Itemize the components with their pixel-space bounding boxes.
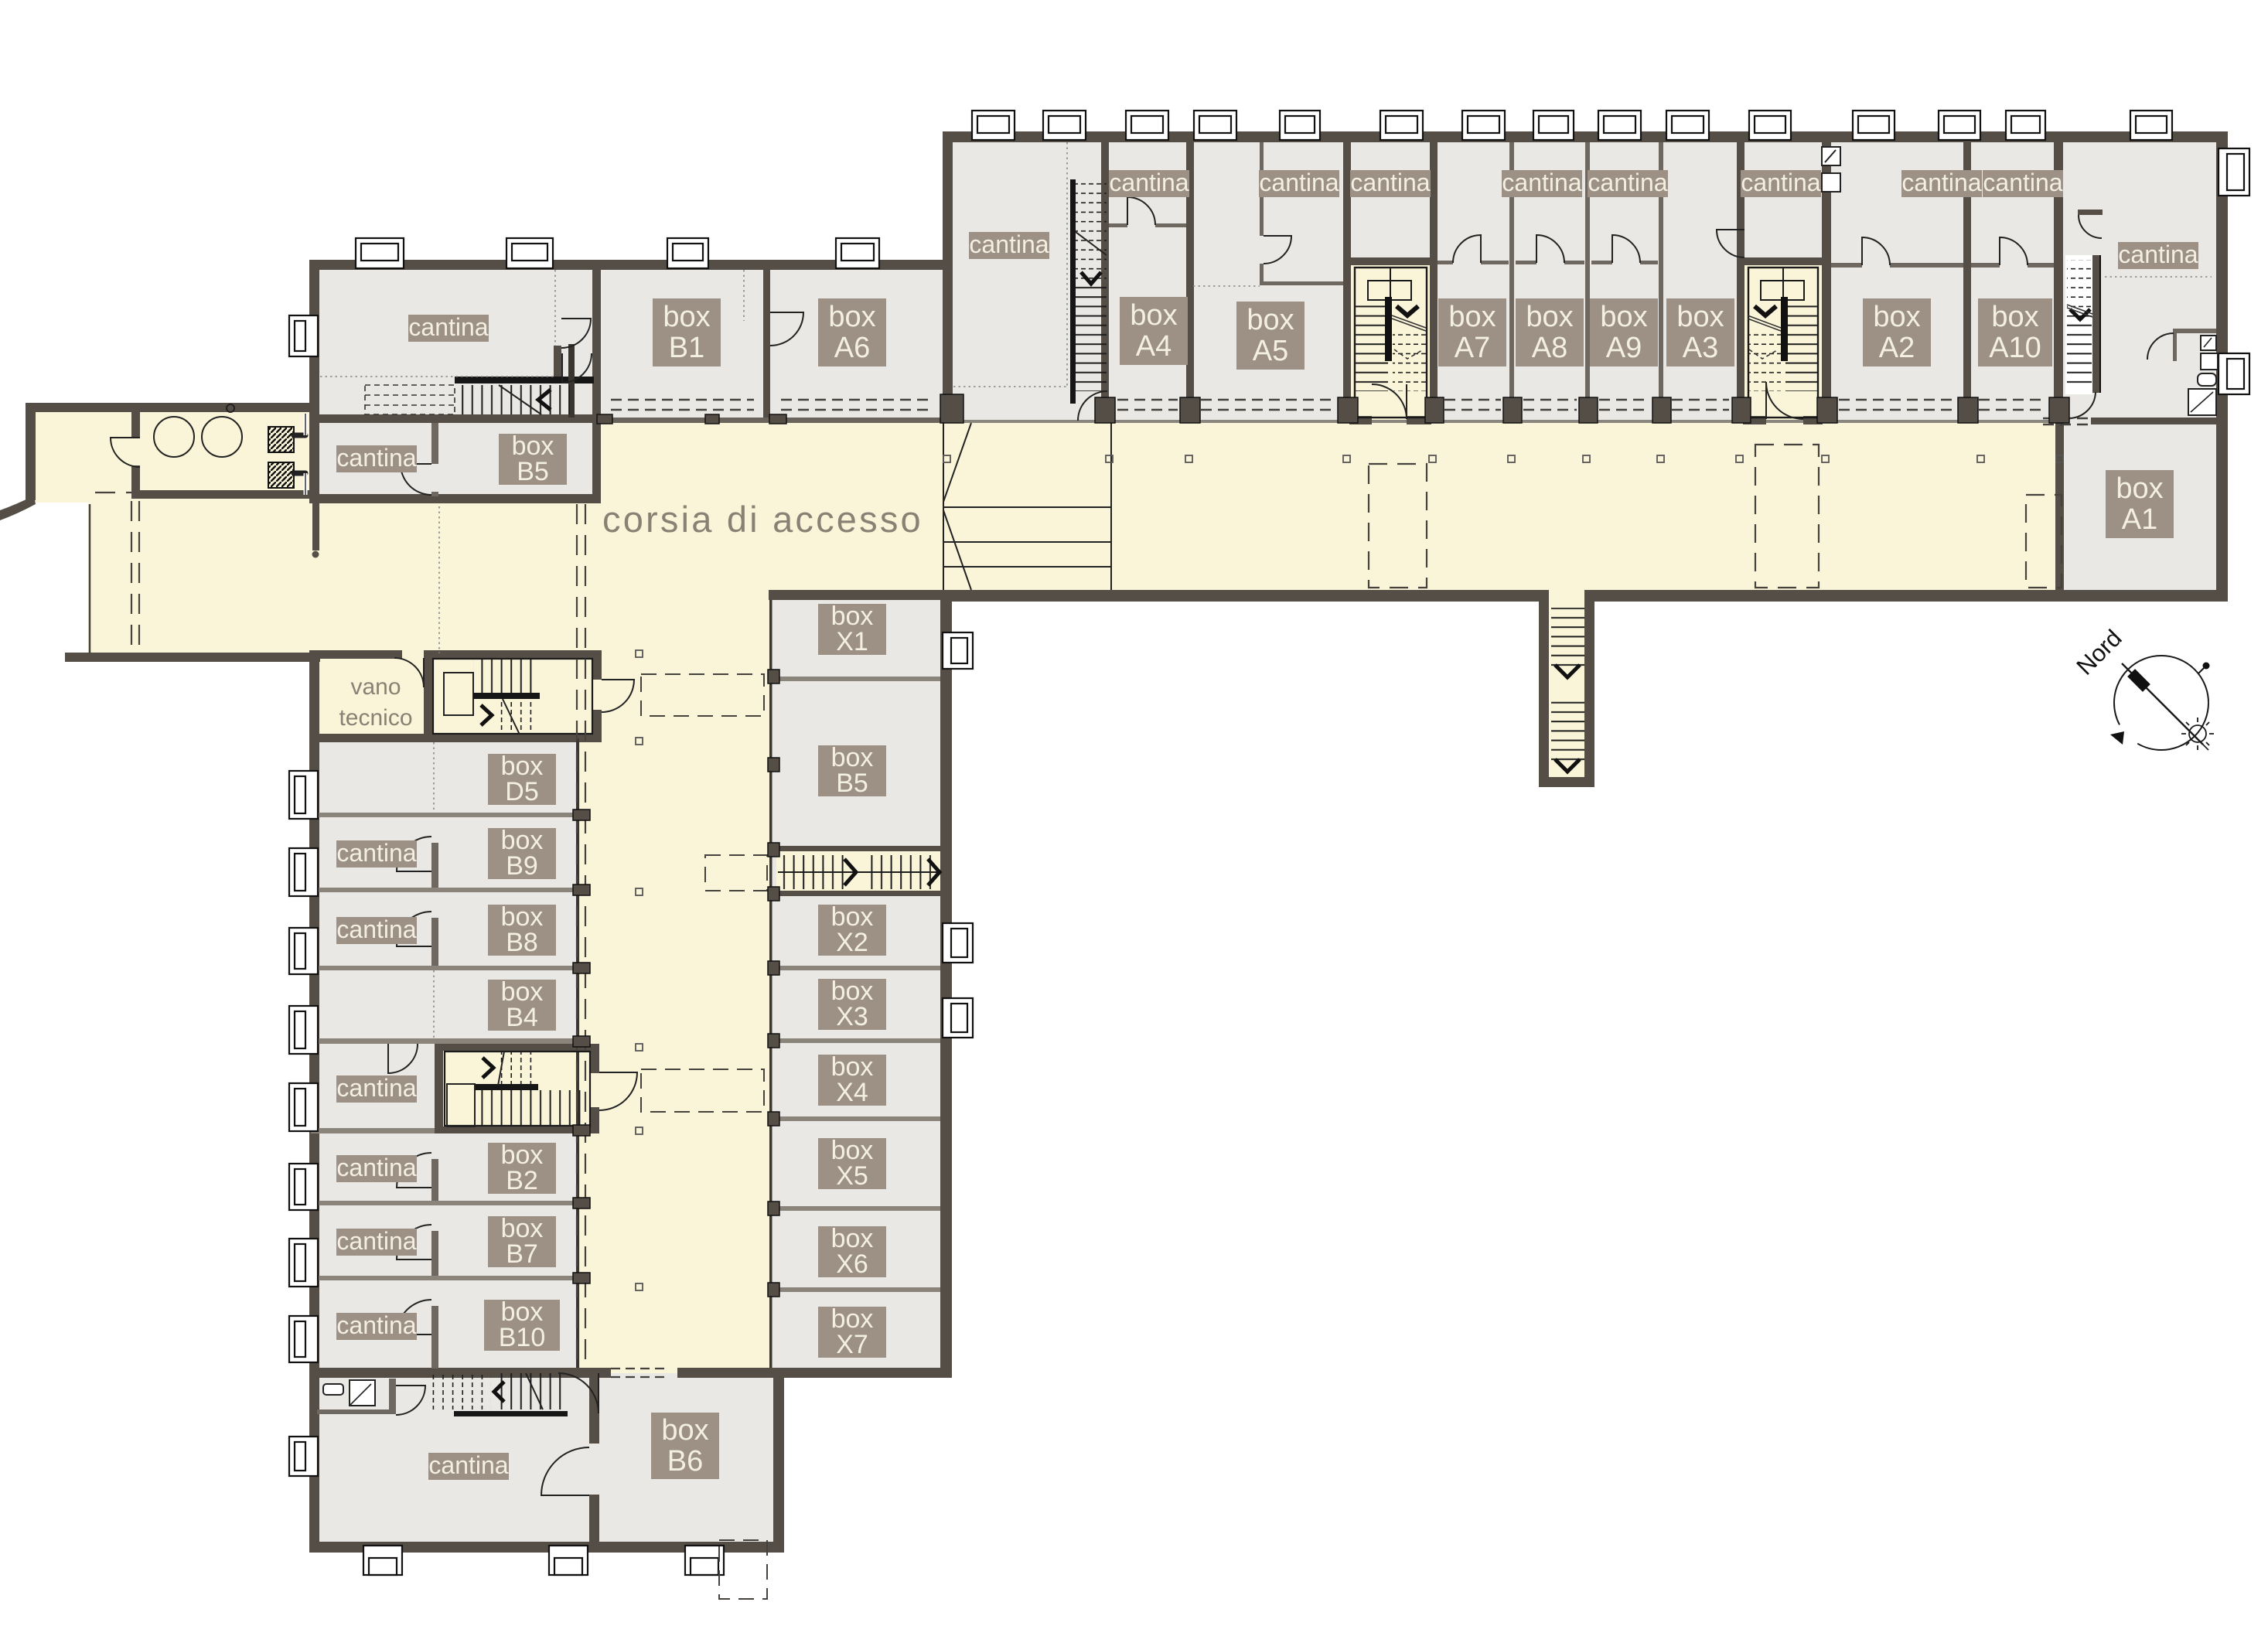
svg-text:A10: A10 (1989, 332, 2041, 364)
svg-text:B4: B4 (506, 1003, 538, 1032)
svg-text:vano: vano (350, 674, 401, 700)
svg-text:cantina: cantina (1502, 169, 1581, 196)
svg-text:A9: A9 (1606, 332, 1642, 364)
svg-text:cantina: cantina (336, 915, 416, 943)
svg-text:A1: A1 (2122, 503, 2157, 536)
svg-text:box: box (661, 1414, 708, 1447)
svg-text:A6: A6 (834, 332, 870, 364)
svg-text:X2: X2 (836, 928, 868, 957)
svg-text:box: box (1448, 301, 1496, 333)
svg-text:box: box (1600, 301, 1647, 333)
svg-text:B5: B5 (517, 457, 549, 486)
svg-text:box: box (828, 301, 875, 333)
svg-text:box: box (1676, 301, 1724, 333)
svg-text:D5: D5 (505, 777, 538, 806)
svg-text:A8: A8 (1532, 332, 1567, 364)
svg-text:cantina: cantina (336, 839, 416, 867)
svg-text:cantina: cantina (1983, 169, 2062, 196)
svg-text:A5: A5 (1253, 335, 1288, 367)
svg-text:cantina: cantina (1109, 169, 1189, 196)
svg-text:cantina: cantina (2118, 240, 2198, 268)
svg-text:B2: B2 (506, 1166, 538, 1195)
svg-text:box: box (1873, 301, 1920, 333)
svg-text:cantina: cantina (1901, 169, 1981, 196)
svg-text:B5: B5 (836, 769, 868, 798)
svg-text:B7: B7 (506, 1239, 538, 1269)
svg-text:A2: A2 (1879, 332, 1915, 364)
svg-text:X4: X4 (836, 1078, 868, 1107)
svg-text:box: box (663, 301, 710, 333)
svg-text:A7: A7 (1455, 332, 1490, 364)
svg-text:A4: A4 (1136, 330, 1172, 363)
svg-text:cantina: cantina (408, 313, 488, 341)
svg-text:cantina: cantina (336, 1154, 416, 1181)
svg-text:B10: B10 (499, 1323, 546, 1352)
svg-text:B1: B1 (669, 332, 704, 364)
svg-text:box: box (2116, 472, 2163, 505)
svg-text:X1: X1 (836, 627, 868, 656)
svg-text:cantina: cantina (1741, 169, 1820, 196)
svg-text:X3: X3 (836, 1002, 868, 1031)
svg-text:box: box (1247, 304, 1294, 336)
svg-text:cantina: cantina (428, 1451, 508, 1479)
svg-text:cantina: cantina (1259, 169, 1339, 196)
svg-text:B9: B9 (506, 851, 538, 881)
svg-text:X7: X7 (836, 1330, 868, 1359)
svg-text:cantina: cantina (1588, 169, 1667, 196)
svg-text:X6: X6 (836, 1249, 868, 1279)
svg-text:cantina: cantina (336, 444, 416, 472)
svg-text:tecnico: tecnico (339, 705, 412, 731)
svg-text:cantina: cantina (969, 230, 1049, 258)
svg-text:cantina: cantina (1350, 169, 1430, 196)
svg-text:B8: B8 (506, 928, 538, 957)
svg-text:A3: A3 (1683, 332, 1718, 364)
svg-text:cantina: cantina (336, 1227, 416, 1255)
svg-text:X5: X5 (836, 1161, 868, 1191)
svg-text:box: box (1130, 299, 1177, 332)
svg-text:cantina: cantina (336, 1074, 416, 1102)
svg-text:box: box (1526, 301, 1573, 333)
svg-text:B6: B6 (667, 1445, 703, 1478)
svg-text:box: box (1991, 301, 2038, 333)
svg-text:corsia di accesso: corsia di accesso (602, 499, 923, 540)
svg-text:cantina: cantina (336, 1311, 416, 1339)
